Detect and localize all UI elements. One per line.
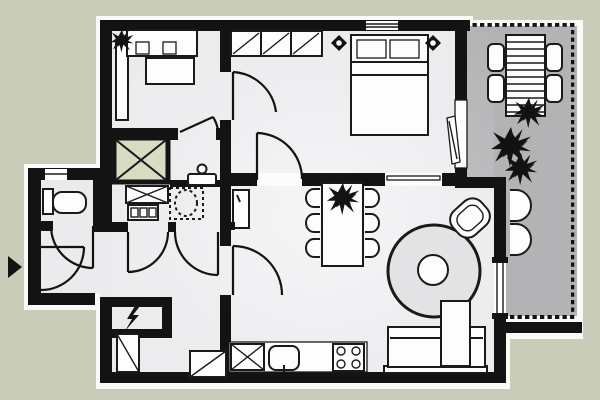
radiator-valve [228,222,235,230]
double-bed-pillow [357,40,386,58]
sofa-chaise [441,301,470,366]
dining-chair [306,189,320,207]
dining-chair [365,189,379,207]
lounge-chair [510,190,531,221]
radiator [233,190,249,228]
shaft [114,138,168,182]
floor-plan-svg [0,0,600,400]
dining-chair [306,239,320,257]
railing-top [467,23,577,29]
toilet-bowl [53,192,86,213]
wall-bath-bottom-b [168,222,176,232]
terrace-table [506,35,545,116]
railing-right [571,23,577,319]
bedroom2-sliding-door [387,176,440,180]
dining-chair [306,214,320,232]
living-window-cap-top [492,257,508,263]
wall-annex-bottom [28,293,95,305]
wall-annex-left [28,168,41,305]
rug-center [418,255,448,285]
single-bed-pillow [136,42,149,54]
wall-niche-top [100,297,172,307]
wall-living-right-upper [494,186,506,262]
terrace-chair [488,44,504,71]
bedroom2-window [366,21,398,30]
wall-wc-right [93,168,103,232]
washbasin [188,174,216,185]
single-bed-mattress [146,58,194,84]
floor-plan-image [0,0,600,400]
lounge-chair [510,224,531,255]
terrace-chair [488,75,504,102]
wall-terrace-bottom [506,322,582,333]
wall-divider-upper [220,20,231,72]
wall-left-lower [100,297,112,383]
living-window-cap-bottom [492,313,508,319]
wall-wc-bottom [28,221,53,231]
washer-dryer-unit [128,205,158,220]
terrace-chair [546,44,562,71]
wall-lamp-bulb [336,40,342,46]
wall-bedroom2-right-upper [455,20,467,100]
wall-bedroom1-bottom-left [100,128,178,140]
dining-chair [365,214,379,232]
wall-bath-bottom-a [100,222,128,232]
hall-opening-floor [100,232,113,297]
wc-fixtures [43,189,86,214]
toilet-tank [43,189,53,214]
terrace-chair [546,75,562,102]
washbasin-faucet [198,165,207,174]
dining-chair [365,239,379,257]
single-bed-pillow [163,42,176,54]
living-terrace-window [494,262,506,314]
wall-lamp-bulb [430,40,436,46]
dressing-closet [231,31,322,56]
kitchen [229,342,367,372]
double-bed-pillow [390,40,419,58]
wall-living-top-a [231,173,257,186]
railing-bottom [504,313,572,319]
